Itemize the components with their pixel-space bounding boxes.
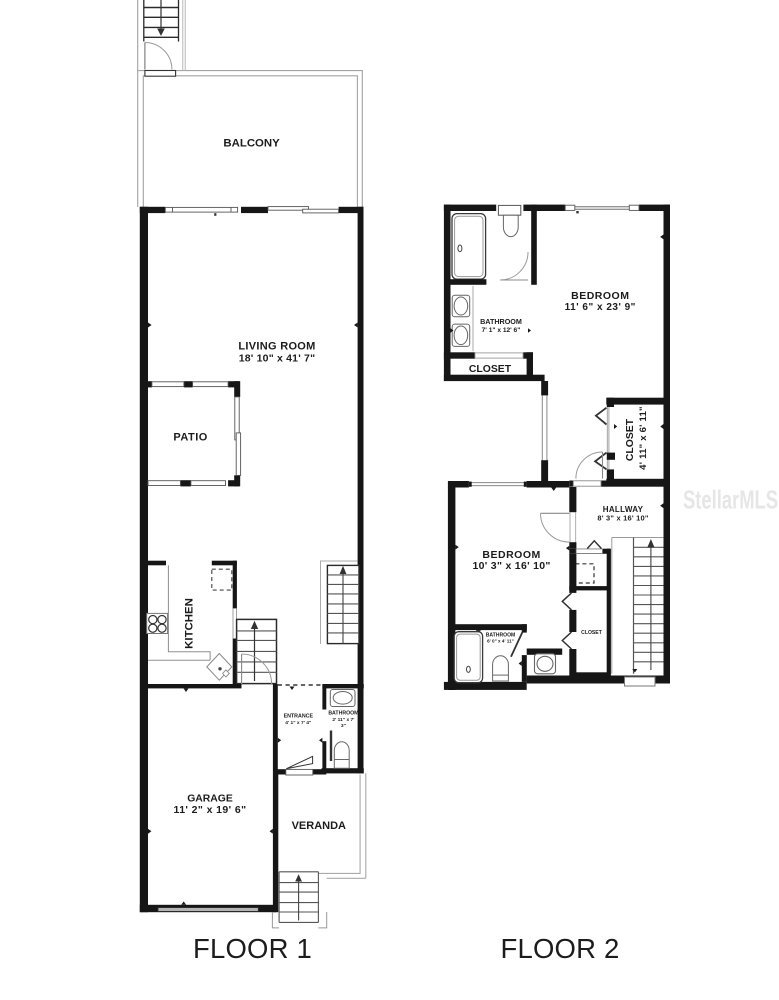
svg-text:BATHROOM: BATHROOM	[328, 711, 358, 717]
svg-text:11' 6" x 23' 9": 11' 6" x 23' 9"	[565, 302, 636, 313]
svg-text:BATHROOM: BATHROOM	[486, 632, 516, 638]
svg-text:CLOSET: CLOSET	[581, 630, 603, 636]
svg-text:KITCHEN: KITCHEN	[184, 598, 196, 649]
svg-text:ENTRANCE: ENTRANCE	[284, 714, 314, 720]
svg-text:StellarMLS: StellarMLS	[683, 485, 778, 515]
svg-text:FLOOR 1: FLOOR 1	[193, 933, 312, 964]
svg-text:PATIO: PATIO	[173, 431, 207, 443]
svg-text:VERANDA: VERANDA	[292, 820, 346, 832]
svg-text:BALCONY: BALCONY	[223, 138, 280, 150]
svg-text:CLOSET: CLOSET	[469, 364, 512, 375]
svg-text:7' 1" x 12' 6": 7' 1" x 12' 6"	[482, 327, 521, 334]
svg-text:10' 3" x 16' 10": 10' 3" x 16' 10"	[473, 560, 551, 572]
svg-text:3": 3"	[341, 723, 346, 729]
svg-text:LIVING ROOM: LIVING ROOM	[238, 340, 315, 352]
svg-text:BATHROOM: BATHROOM	[480, 317, 522, 326]
svg-text:BEDROOM: BEDROOM	[571, 290, 629, 302]
svg-text:8' 3" x 16' 10": 8' 3" x 16' 10"	[597, 513, 648, 522]
svg-text:6' 0" x 4' 11": 6' 0" x 4' 11"	[487, 639, 514, 644]
svg-text:4' 1" x 7' 4": 4' 1" x 7' 4"	[285, 720, 311, 726]
svg-text:CLOSET: CLOSET	[625, 418, 636, 461]
svg-text:11' 2" x 19' 6": 11' 2" x 19' 6"	[174, 804, 247, 816]
svg-text:4' 11" x 6' 11": 4' 11" x 6' 11"	[638, 406, 649, 470]
svg-text:18' 10" x 41' 7": 18' 10" x 41' 7"	[239, 352, 316, 364]
svg-text:2' 11" x 7': 2' 11" x 7'	[332, 717, 354, 723]
svg-text:FLOOR 2: FLOOR 2	[500, 933, 619, 964]
svg-text:GARAGE: GARAGE	[187, 793, 233, 804]
